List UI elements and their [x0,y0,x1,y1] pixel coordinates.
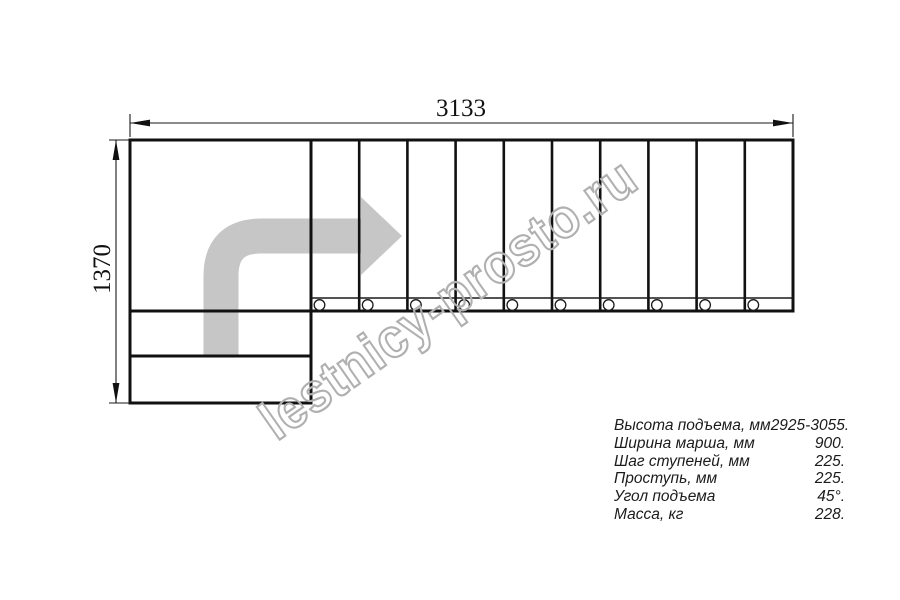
dimension-vertical: 1370 [89,140,129,403]
spec-row: Высота подъема, мм 2925-3055. [614,417,845,435]
spec-row: Проступь, мм 225. [614,470,845,488]
fastener-circle [314,300,325,311]
spec-value: 900. [815,435,845,453]
spec-label: Ширина марша, мм [614,435,755,453]
spec-label: Шаг ступеней, мм [614,453,750,471]
spec-value: 228. [815,506,845,524]
spec-row: Угол подъема 45°. [614,488,845,506]
spec-value: 45°. [817,488,845,506]
fastener-circle [652,300,663,311]
specs-table: Высота подъема, мм 2925-3055. Ширина мар… [614,417,845,524]
spec-label: Угол подъема [614,488,715,506]
spec-value: 2925-3055. [771,417,849,435]
spec-value: 225. [815,470,845,488]
spec-label: Проступь, мм [614,470,717,488]
total-run-dimension-label: 3133 [436,95,486,122]
spec-label: Масса, кг [614,506,683,524]
spec-row: Шаг ступеней, мм 225. [614,453,845,471]
dim-arrow-right-icon [773,120,793,127]
fastener-circle [603,300,614,311]
spec-row: Ширина марша, мм 900. [614,435,845,453]
stair-plan-drawing: 3133 1370 lestnicy-prosto.ru Высота подъ… [0,0,900,600]
fastener-circle [700,300,711,311]
spec-value: 225. [815,453,845,471]
dimension-horizontal: 3133 [130,95,793,137]
spec-label: Высота подъема, мм [614,417,771,435]
spec-row: Масса, кг 228. [614,506,845,524]
dim-arrow-down-icon [113,383,120,403]
fastener-circle [507,300,518,311]
dim-arrow-up-icon [113,140,120,160]
fastener-circle [555,300,566,311]
fastener-circle [748,300,759,311]
fastener-circle [362,300,373,311]
total-width-dimension-label: 1370 [89,244,116,294]
dim-arrow-left-icon [130,120,150,127]
direction-arrowhead-icon [361,197,402,275]
